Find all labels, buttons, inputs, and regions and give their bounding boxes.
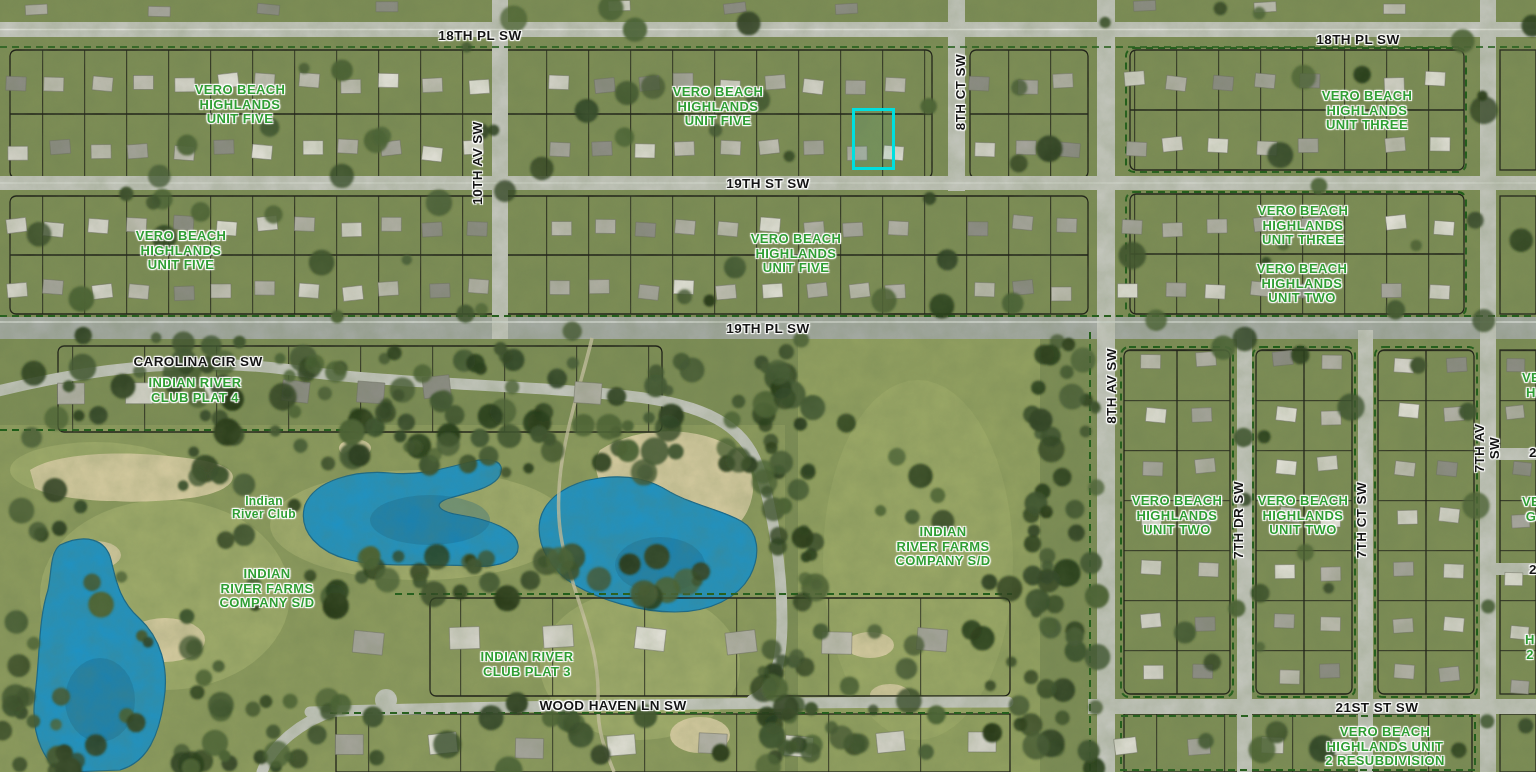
selected-parcel-highlight[interactable] xyxy=(852,108,895,170)
aerial-imagery xyxy=(0,0,1536,772)
map-canvas[interactable]: 18TH PL SW 18TH PL SW 19TH ST SW 19TH PL… xyxy=(0,0,1536,772)
